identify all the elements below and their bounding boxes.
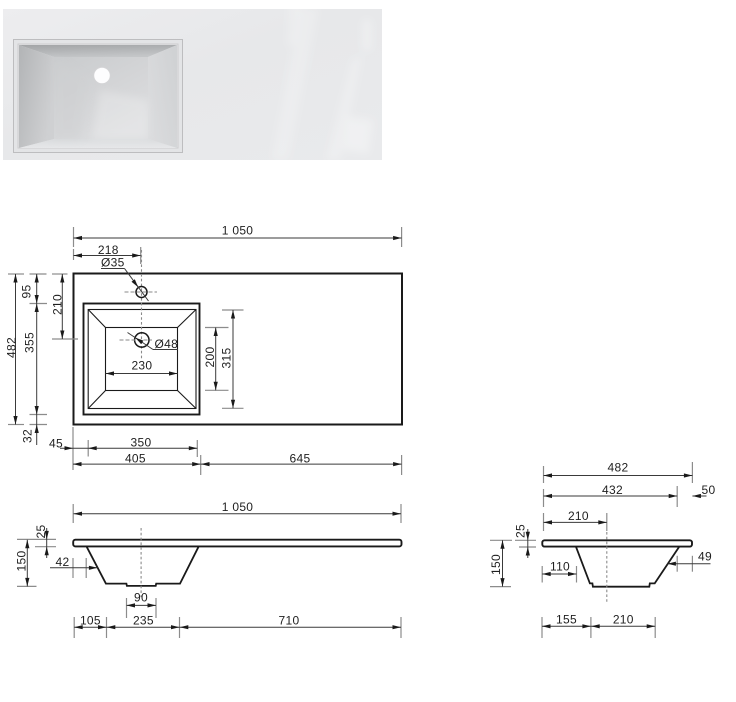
- svg-text:210: 210: [568, 509, 589, 523]
- svg-text:210: 210: [51, 294, 65, 315]
- svg-text:50: 50: [702, 483, 716, 497]
- svg-text:210: 210: [613, 613, 634, 627]
- svg-text:315: 315: [220, 348, 234, 369]
- svg-text:150: 150: [489, 554, 503, 575]
- svg-text:25: 25: [34, 525, 48, 539]
- svg-text:110: 110: [550, 560, 570, 574]
- svg-text:1 050: 1 050: [222, 500, 254, 514]
- svg-text:32: 32: [21, 429, 35, 443]
- svg-text:230: 230: [131, 359, 152, 373]
- svg-text:350: 350: [131, 436, 152, 450]
- svg-text:482: 482: [608, 461, 629, 475]
- svg-text:95: 95: [20, 285, 34, 299]
- svg-text:235: 235: [133, 614, 154, 628]
- svg-text:710: 710: [279, 614, 300, 628]
- svg-text:90: 90: [134, 591, 148, 605]
- svg-text:645: 645: [290, 452, 311, 466]
- svg-text:Ø48: Ø48: [155, 337, 179, 351]
- svg-text:405: 405: [125, 452, 146, 466]
- svg-text:25: 25: [514, 524, 528, 538]
- svg-text:42: 42: [56, 555, 70, 569]
- svg-text:105: 105: [80, 614, 101, 628]
- svg-text:1 050: 1 050: [222, 224, 254, 238]
- svg-text:45: 45: [49, 437, 63, 451]
- svg-text:218: 218: [98, 243, 119, 257]
- svg-text:150: 150: [15, 551, 29, 572]
- svg-text:155: 155: [556, 613, 577, 627]
- svg-text:355: 355: [23, 332, 37, 353]
- svg-text:49: 49: [698, 550, 712, 564]
- svg-text:482: 482: [5, 337, 19, 358]
- svg-text:432: 432: [602, 483, 623, 497]
- svg-text:200: 200: [203, 347, 217, 368]
- svg-text:Ø35: Ø35: [101, 256, 125, 270]
